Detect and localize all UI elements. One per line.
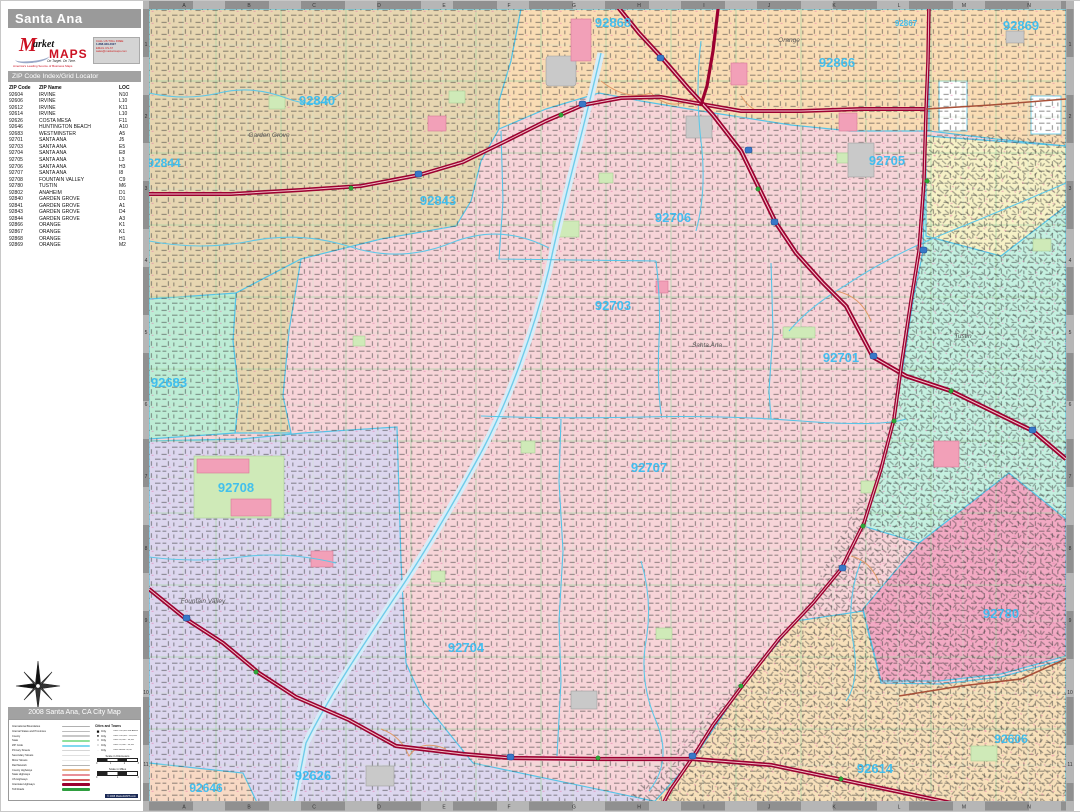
- svg-text:M: M: [962, 3, 966, 9]
- svg-text:N: N: [1027, 3, 1031, 9]
- svg-text:Garden Grove: Garden Grove: [248, 132, 290, 139]
- zip-index-table: ZIP Code ZIP Name LOC 92604 IRVINE N10 9…: [9, 85, 141, 249]
- svg-text:Santa Ana: Santa Ana: [692, 342, 723, 349]
- svg-text:3: 3: [145, 186, 148, 192]
- svg-text:92683: 92683: [151, 375, 187, 390]
- cities-towns-header: Cities and Towns: [95, 724, 140, 728]
- scale-tick: 3: [138, 762, 139, 765]
- legend-line-items: International Boundaries Internal States…: [12, 724, 94, 792]
- svg-text:3: 3: [1069, 186, 1072, 192]
- legend-header: 2008 Santa Ana, CA City Map: [8, 707, 141, 719]
- city-symbol-label: City: [101, 738, 113, 742]
- zip-table-body: 92604 IRVINE N10 92606 IRVINE L10 92612 …: [9, 92, 141, 249]
- legend-label: Toll Roads: [12, 788, 62, 791]
- scale-tick: 1: [117, 776, 118, 779]
- svg-text:92840: 92840: [299, 93, 335, 108]
- legend-label: International Boundaries: [12, 725, 62, 728]
- scale-km-bar: [97, 758, 138, 763]
- legend-label: ZIP Code: [12, 744, 62, 747]
- svg-text:92844: 92844: [147, 156, 181, 170]
- contact-line: sales@marketmaps.com: [96, 50, 137, 54]
- poster-title: Santa Ana: [8, 9, 141, 28]
- svg-text:92780: 92780: [983, 606, 1019, 621]
- city-population-range: Cities 100,000 - 249,999: [113, 735, 137, 737]
- legend-label: Minor Streets: [12, 759, 62, 762]
- city-population-range: Cities 25,000 - 49,999: [113, 744, 134, 746]
- cell-loc: M2: [119, 242, 139, 249]
- svg-text:92843: 92843: [420, 193, 456, 208]
- svg-text:8: 8: [1069, 546, 1072, 552]
- legend-label: Interstate Highways: [12, 783, 62, 786]
- legend-label: Primary Streets: [12, 749, 62, 752]
- svg-text:92646: 92646: [189, 781, 223, 795]
- legend-line-sample: [62, 788, 90, 790]
- legend-label: US Highways: [12, 778, 62, 781]
- svg-text:5: 5: [145, 330, 148, 336]
- legend-line-sample: [62, 760, 90, 761]
- svg-text:C: C: [312, 3, 316, 9]
- svg-text:4: 4: [1069, 258, 1072, 264]
- legend-line-sample: [62, 745, 90, 747]
- svg-text:L: L: [898, 3, 901, 9]
- legend-label: State: [12, 739, 62, 742]
- legend-line-sample: [62, 769, 90, 771]
- city-symbol-label: City: [101, 729, 113, 733]
- contact-box: CALL US TOLL FREE1-888-929-4627EMAIL US …: [93, 37, 140, 64]
- svg-text:9: 9: [145, 618, 148, 624]
- city-symbol-label: City: [101, 734, 113, 738]
- table-row: 92869 ORANGE M2: [9, 242, 141, 249]
- legend-label: State Highways: [12, 773, 62, 776]
- legend-line-sample: [62, 735, 90, 736]
- svg-text:92614: 92614: [857, 761, 894, 776]
- svg-text:92708: 92708: [218, 480, 254, 495]
- legend-line-sample: [62, 740, 90, 742]
- scale-tick: 0: [96, 762, 97, 765]
- cell-name: ORANGE: [39, 242, 119, 249]
- svg-text:I: I: [703, 3, 704, 9]
- legend-line-sample: [62, 750, 90, 751]
- svg-text:G: G: [572, 3, 576, 9]
- svg-text:92868: 92868: [595, 15, 631, 30]
- svg-text:92867: 92867: [895, 19, 918, 28]
- compass-rose-icon: [13, 659, 63, 711]
- svg-text:92707: 92707: [631, 460, 667, 475]
- svg-text:92701: 92701: [823, 350, 859, 365]
- svg-text:Fountain Valley: Fountain Valley: [181, 598, 226, 605]
- scale-tick: 2: [138, 776, 139, 779]
- city-symbol-label: City: [101, 748, 113, 752]
- svg-text:6: 6: [145, 402, 148, 408]
- svg-text:F: F: [507, 3, 510, 9]
- city-classes: ■ City Cities 250,000 and Above ● City C…: [95, 729, 140, 752]
- svg-text:92704: 92704: [448, 640, 485, 655]
- svg-text:Orange: Orange: [778, 37, 800, 44]
- city-symbol-label: City: [101, 743, 113, 747]
- svg-text:2: 2: [1069, 114, 1072, 120]
- svg-text:1: 1: [145, 42, 148, 48]
- legend-cities: Cities and Towns ■ City Cities 250,000 a…: [95, 724, 140, 779]
- svg-text:9: 9: [1069, 618, 1072, 624]
- legend-line-sample: [62, 765, 90, 766]
- svg-text:2: 2: [145, 114, 148, 120]
- svg-text:H: H: [637, 3, 641, 9]
- city-population-range: Cities Below 25,000: [113, 749, 132, 751]
- zip-index-header: ZIP Code Index/Grid Locator: [8, 71, 141, 82]
- legend-line-sample: [62, 774, 90, 776]
- cell-zip: 92869: [9, 242, 39, 249]
- svg-text:10: 10: [1067, 690, 1073, 696]
- svg-text:11: 11: [143, 762, 148, 768]
- city-population-range: Cities 250,000 and Above: [113, 730, 138, 732]
- city-map: Garden GroveOrangeSanta AnaTustinFountai…: [1, 1, 1080, 811]
- svg-text:6: 6: [1069, 402, 1072, 408]
- svg-text:92703: 92703: [595, 298, 631, 313]
- legend-label: County: [12, 735, 62, 738]
- legend-label: Secondary Streets: [12, 754, 62, 757]
- scale-km-ticks: 0123: [96, 762, 139, 765]
- svg-text:7: 7: [1069, 474, 1072, 480]
- svg-text:11: 11: [1067, 762, 1072, 768]
- legend-line-sample: [62, 783, 90, 785]
- logo-tagline: On Target. On Time.: [47, 59, 76, 63]
- legend-label: Rail Network: [12, 764, 62, 767]
- scale-mi-bar: [97, 771, 138, 776]
- svg-text:92705: 92705: [869, 153, 905, 168]
- legend-label: County Highways: [12, 769, 62, 772]
- scale-mi-ticks: 012: [96, 776, 139, 779]
- legend-label: Internal States and Provinces: [12, 730, 62, 733]
- svg-text:Tustin: Tustin: [954, 333, 972, 340]
- svg-text:92626: 92626: [295, 768, 331, 783]
- svg-text:4: 4: [145, 258, 148, 264]
- svg-text:D: D: [377, 3, 381, 9]
- map-poster: Garden GroveOrangeSanta AnaTustinFountai…: [0, 0, 1080, 812]
- svg-text:8: 8: [145, 546, 148, 552]
- svg-text:92706: 92706: [655, 210, 691, 225]
- city-class-row: · City Cities Below 25,000: [95, 747, 140, 752]
- legend-line-sample: [62, 779, 90, 781]
- logo-subtitle: America's Leading Source of Business Map…: [13, 64, 72, 68]
- scale-tick: 0: [96, 776, 97, 779]
- city-population-range: Cities 50,000 - 99,999: [113, 739, 134, 741]
- svg-text:1: 1: [1069, 42, 1072, 48]
- svg-text:5: 5: [1069, 330, 1072, 336]
- svg-text:92866: 92866: [819, 55, 855, 70]
- svg-text:92869: 92869: [1003, 18, 1039, 33]
- svg-text:92606: 92606: [994, 732, 1028, 746]
- svg-text:10: 10: [143, 690, 149, 696]
- legend-copyright: © 2008 MarketMAPS.com: [105, 794, 138, 798]
- svg-text:7: 7: [145, 474, 148, 480]
- legend-line-sample: [62, 726, 90, 728]
- legend-line-sample: [62, 755, 90, 756]
- scale-tick: 1: [110, 762, 111, 765]
- legend-row: Toll Roads: [12, 787, 94, 792]
- legend-line-sample: [62, 731, 90, 732]
- scale-tick: 2: [124, 762, 125, 765]
- legend-box: International Boundaries Internal States…: [8, 719, 141, 801]
